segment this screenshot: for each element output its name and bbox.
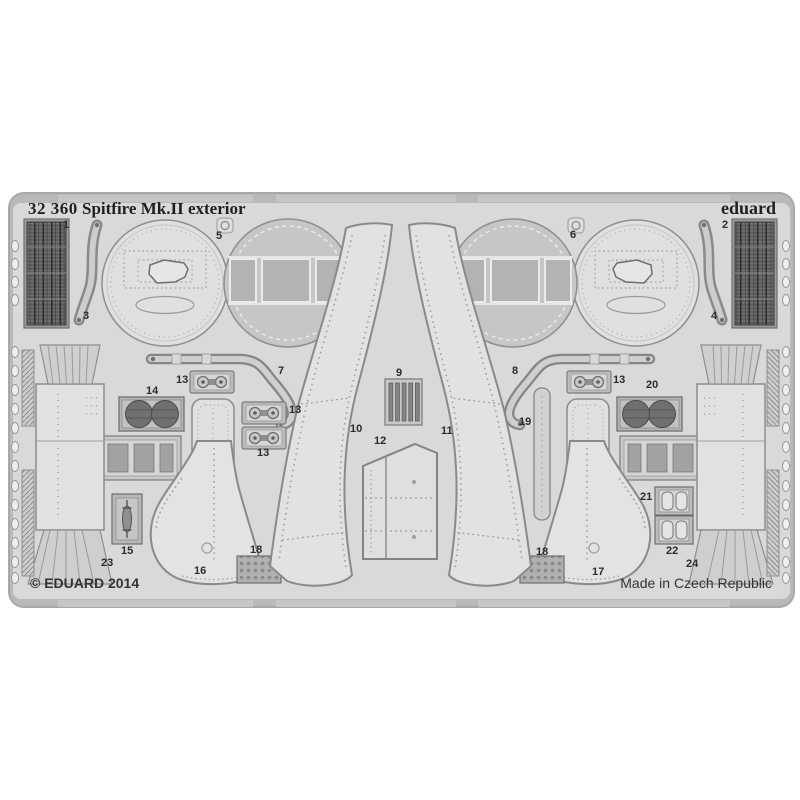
part-number-13d: 13	[613, 374, 625, 386]
hinge-part-13b	[242, 402, 286, 424]
part-number-23: 23	[101, 557, 113, 569]
product-photo: 32 360 Spitfire Mk.II exterior eduard © …	[0, 0, 800, 800]
part-number-18b: 18	[536, 546, 548, 558]
part-number-12: 12	[374, 435, 386, 447]
brand-logo: eduard	[721, 198, 776, 219]
part-number-4: 4	[711, 310, 717, 322]
part-number-21: 21	[640, 491, 652, 503]
part-number-2: 2	[722, 219, 728, 231]
part-number-22: 22	[666, 545, 678, 557]
part-number-3: 3	[83, 310, 89, 322]
part-number-19: 19	[519, 416, 531, 428]
part-number-14: 14	[146, 385, 158, 397]
part-9-louvre	[385, 379, 422, 425]
part-15-bomb-fitting	[112, 494, 142, 544]
part-21-22-block	[655, 487, 693, 544]
part-number-11: 11	[441, 425, 453, 437]
part-number-13c: 13	[257, 447, 269, 459]
part-number-17: 17	[592, 566, 604, 578]
copyright-text: © EDUARD 2014	[30, 575, 139, 591]
part-number-8: 8	[512, 365, 518, 377]
part-number-10: 10	[350, 423, 362, 435]
part-number-16: 16	[194, 565, 206, 577]
part-number-15: 15	[121, 545, 133, 557]
part-12-cowling-panel	[363, 444, 437, 559]
part-number-6: 6	[570, 229, 576, 241]
part-number-9: 9	[396, 367, 402, 379]
photoetch-fret	[0, 0, 800, 800]
product-title: Spitfire Mk.II exterior	[82, 199, 246, 219]
catalog-number: 32 360	[28, 199, 78, 219]
hinge-part-13c	[242, 427, 286, 449]
part-number-24: 24	[686, 558, 698, 570]
made-in-text: Made in Czech Republic	[620, 575, 772, 591]
part-number-13b: 13	[289, 404, 301, 416]
part-number-7: 7	[278, 365, 284, 377]
part-number-20: 20	[646, 379, 658, 391]
part-number-18a: 18	[250, 544, 262, 556]
part-number-5: 5	[216, 230, 222, 242]
part-19-strip	[534, 388, 550, 520]
part-number-1: 1	[63, 219, 69, 231]
part-number-13a: 13	[176, 374, 188, 386]
